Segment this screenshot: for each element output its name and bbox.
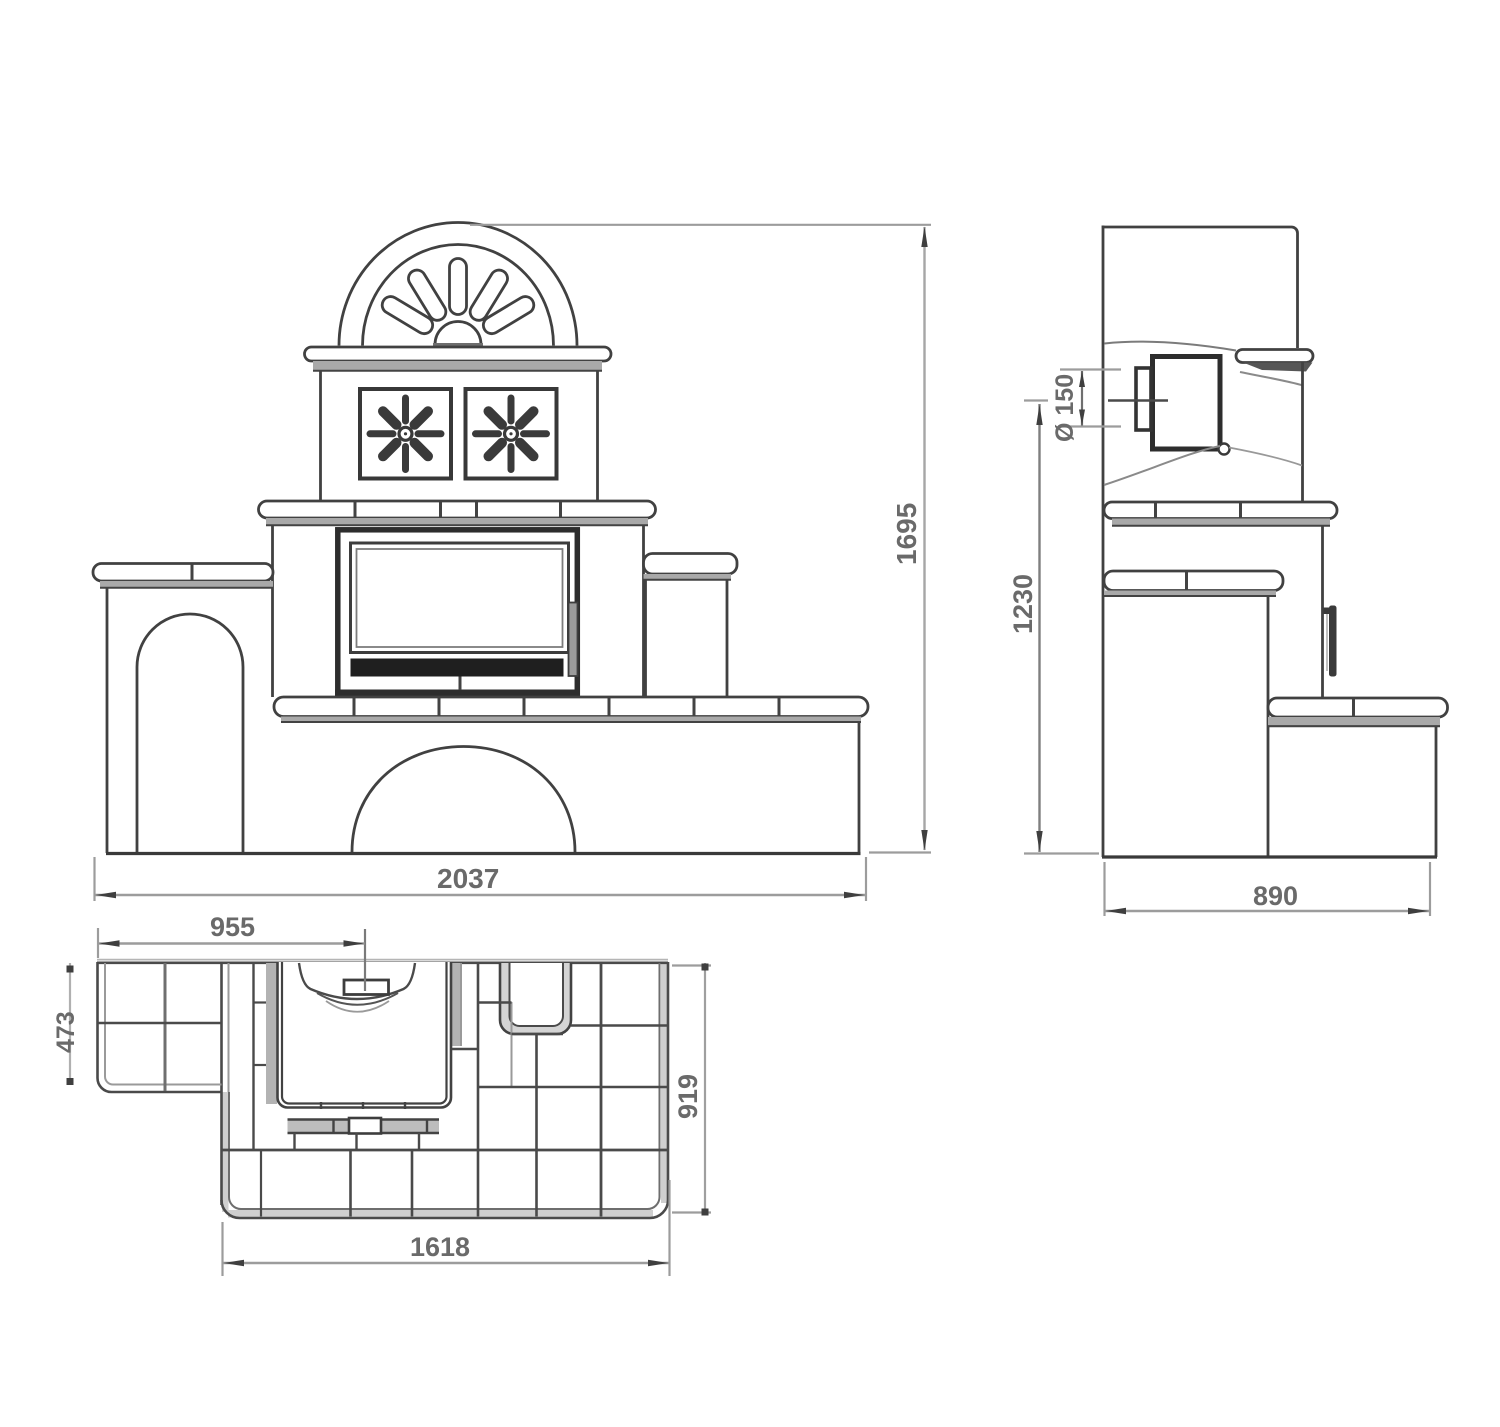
svg-text:890: 890 xyxy=(1253,881,1298,911)
svg-text:955: 955 xyxy=(210,912,255,942)
svg-text:Ø 150: Ø 150 xyxy=(1051,374,1079,442)
svg-text:919: 919 xyxy=(673,1074,703,1119)
svg-text:1618: 1618 xyxy=(410,1232,470,1262)
svg-text:2037: 2037 xyxy=(437,863,499,894)
svg-text:1230: 1230 xyxy=(1008,574,1038,634)
svg-text:473: 473 xyxy=(52,1011,80,1053)
svg-text:1695: 1695 xyxy=(891,503,922,565)
